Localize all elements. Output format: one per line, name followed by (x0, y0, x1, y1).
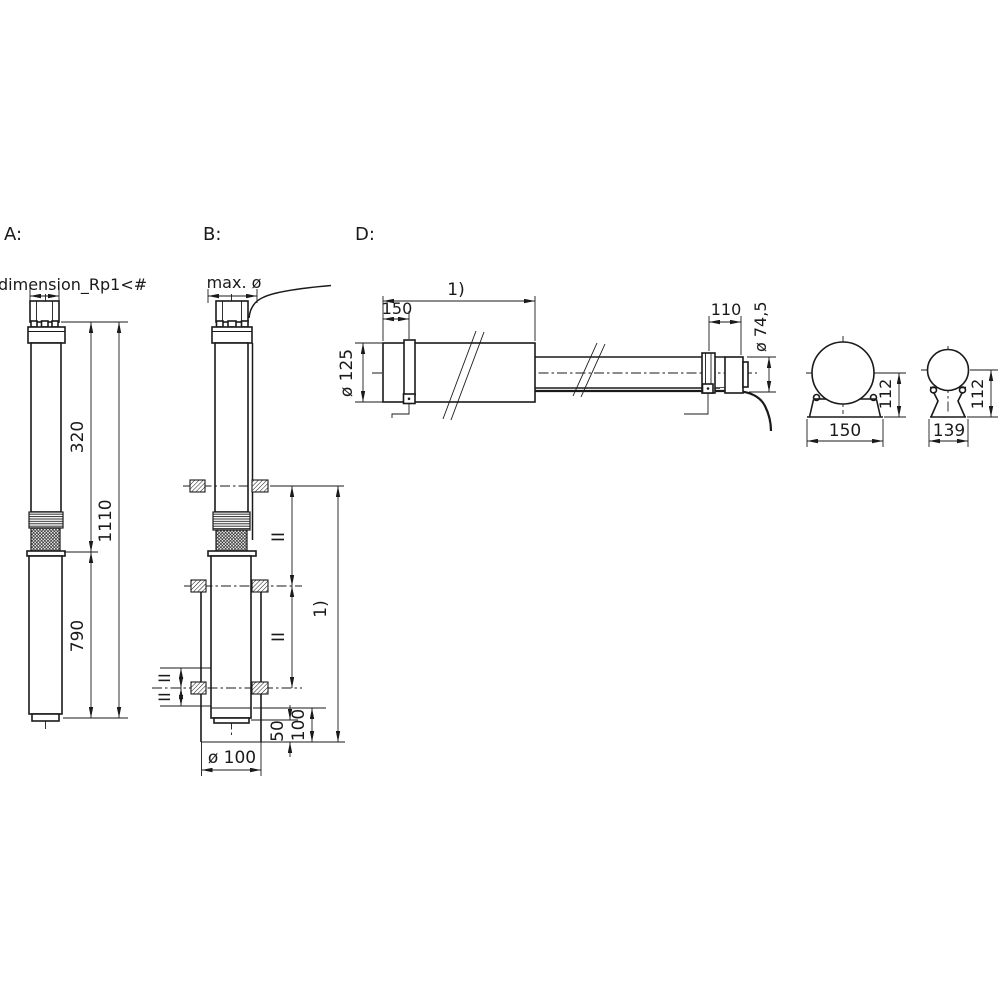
connector-b (216, 301, 248, 322)
dim-139-base: 139 (933, 421, 965, 441)
motor-foot-b (214, 718, 249, 723)
dim-112-motor: 112 (876, 379, 895, 410)
view-a-label: A: (4, 224, 22, 245)
dim-connection-a: dimension_Rp1<# (0, 275, 147, 304)
dims-a: 320 790 1110 (61, 322, 128, 718)
dim-well-diameter-b: ø 100 (202, 742, 262, 776)
clamp-pump-d (684, 353, 715, 414)
dim-depth-text: 1) (311, 600, 331, 617)
strainer-mesh-a (31, 528, 60, 551)
dim-left-lower: II (155, 692, 174, 701)
collar-a (28, 327, 65, 343)
strainer-ribs-a (29, 512, 63, 528)
strainer-mesh-b (216, 530, 247, 551)
cross-section-pump: 112 139 (921, 346, 998, 447)
pump-horizontal-d (372, 331, 771, 431)
dimension-drawing-page: A: dimension_Rp1<# (0, 0, 1000, 1000)
view-b-label: B: (203, 224, 221, 245)
pump-circle (928, 350, 969, 391)
view-a: A: dimension_Rp1<# (0, 224, 147, 729)
dim-spacing-lower: II (269, 632, 289, 642)
dim-max-diameter-text: max. ø (207, 273, 262, 292)
dimension-drawing: A: dimension_Rp1<# (0, 0, 1000, 1000)
dim-length-d: 1) (447, 280, 464, 300)
pump-section-b (215, 343, 248, 512)
dim-100: 100 (289, 709, 309, 741)
collar-b (212, 327, 252, 343)
dim-1110: 1110 (96, 499, 116, 542)
connector-a (30, 301, 59, 322)
strainer-ribs-b (213, 512, 250, 530)
dims-clamp-spacing-b: II II (269, 486, 344, 688)
view-d-label: D: (355, 224, 375, 245)
dim-150-d: 150 (382, 299, 413, 318)
dim-320: 320 (68, 421, 88, 453)
dim-112-pump: 112 (968, 379, 987, 410)
dim-o100: ø 100 (208, 748, 256, 768)
view-d: D: (337, 224, 998, 447)
power-cable-d (535, 391, 771, 431)
pump-a (27, 294, 65, 729)
dim-50: 50 (268, 720, 288, 742)
dims-bottom-b: 100 50 (251, 705, 326, 757)
dim-o125-d: ø 125 (337, 349, 357, 397)
motor-foot-a (32, 714, 59, 721)
pump-b (208, 286, 331, 737)
dim-110-d: 110 (711, 300, 742, 319)
motor-circle (812, 342, 874, 404)
break-lines-pump-d (573, 343, 605, 397)
discharge-port-d (725, 357, 748, 393)
dim-150-base: 150 (829, 421, 861, 441)
dim-max-diameter-b: max. ø (207, 273, 262, 303)
motor-a (29, 556, 62, 714)
motor-b (211, 556, 251, 718)
dim-spacing-upper: II (269, 532, 289, 542)
cross-section-motor: 112 150 (806, 336, 906, 447)
pump-section-a (31, 343, 61, 512)
dim-left-upper: II (155, 673, 174, 682)
dim-installation-depth-b: 1) (311, 486, 338, 742)
thread-relief-a (31, 321, 37, 327)
dim-connection-a-text: dimension_Rp1<# (0, 275, 147, 295)
view-b: B: max. ø (152, 224, 345, 776)
dim-790: 790 (68, 620, 88, 652)
thread-relief-b (217, 321, 224, 327)
dim-o74-d: ø 74,5 (751, 302, 770, 353)
